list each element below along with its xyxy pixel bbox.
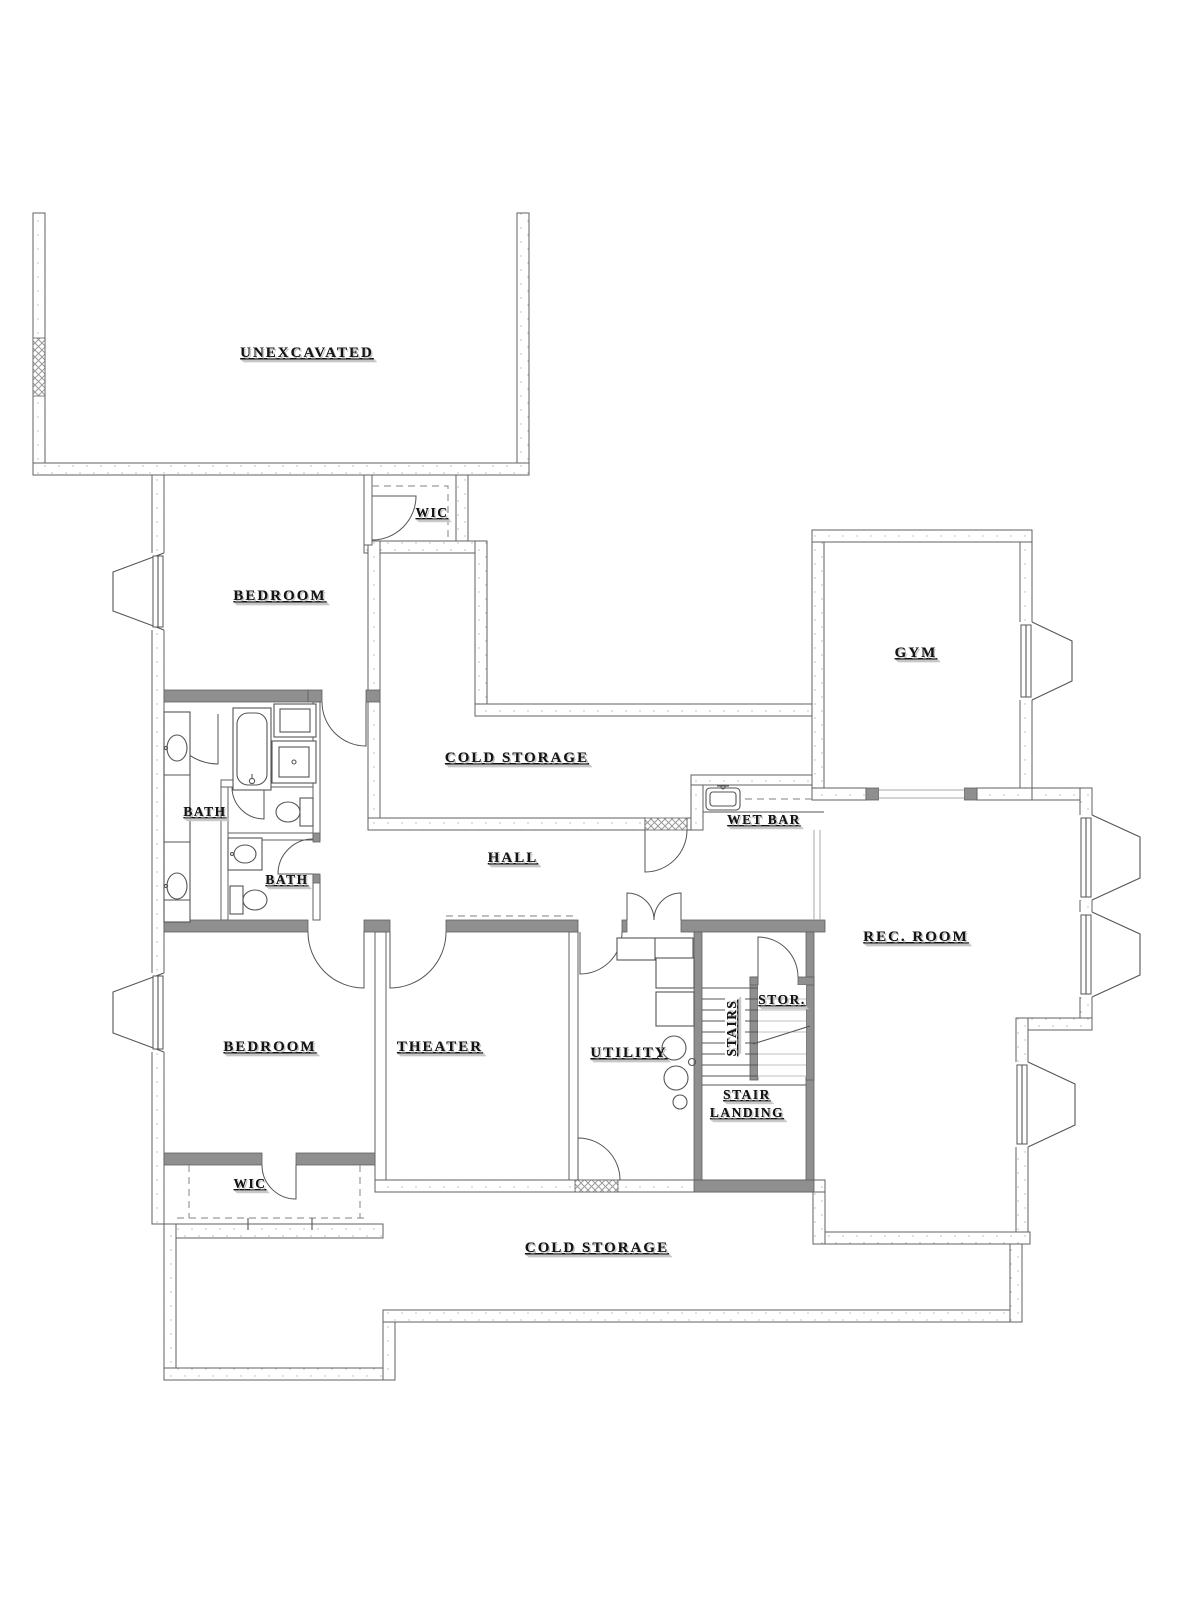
wet-bar-counter [703, 785, 824, 812]
expansion-tank [673, 1095, 687, 1109]
label-rec-room: REC. ROOM [863, 929, 969, 945]
door-hall-closet-left [627, 893, 654, 920]
water-softener [656, 992, 694, 1026]
sink-top [167, 735, 187, 761]
linen-cabinet [274, 704, 316, 737]
label-bedroom-top: BEDROOM [233, 588, 326, 604]
label-wic-bottom: WIC [233, 1176, 266, 1191]
label-hall: HALL [488, 850, 539, 866]
sink-bottom [167, 873, 187, 899]
bay-window-gym [1018, 622, 1072, 700]
utility-equipment [617, 938, 696, 1109]
toilet-lower [230, 886, 267, 914]
door-storage [758, 937, 798, 977]
label-wic-top: WIC [415, 505, 448, 520]
door-utility [580, 932, 622, 974]
bay-window-rec-upper [1078, 815, 1140, 900]
label-stair-landing-line1: STAIR [723, 1087, 771, 1102]
label-bath-main: BATH [183, 804, 226, 819]
gym-rec-opening [814, 786, 964, 920]
label-wet-bar: WET BAR [727, 812, 801, 827]
vanity-small-bath [228, 838, 262, 870]
door-wic-bottom [262, 1165, 296, 1199]
label-bath-small: BATH [265, 872, 308, 887]
furnace [656, 958, 694, 988]
label-theater: THEATER [397, 1039, 483, 1055]
bay-window-rec-lower [1014, 1062, 1075, 1147]
label-gym: GYM [895, 645, 938, 661]
door-bath-small [278, 839, 313, 874]
label-cold-storage-top: COLD STORAGE [445, 750, 589, 766]
bay-window-bedroom-bottom [113, 973, 166, 1052]
door-hall-closet-right [654, 893, 681, 920]
toilet-upper [276, 798, 313, 826]
wet-bar-sink [706, 788, 740, 810]
bay-window-rec-middle [1078, 912, 1140, 997]
label-stairs: STAIRS [724, 1000, 739, 1057]
floor-plan-page: UNEXCAVATED WIC BEDROOM GYM COLD STORAGE… [0, 0, 1200, 1600]
label-stair-landing-line2: LANDING [710, 1105, 784, 1120]
door-bedroom-bottom [308, 932, 364, 988]
shower [272, 741, 316, 783]
label-storage: STOR. [758, 992, 805, 1007]
door-cold-storage-top [645, 830, 687, 872]
bay-window-bedroom-top [113, 553, 166, 630]
bathtub [233, 708, 271, 790]
door-bedroom-top [322, 702, 366, 746]
door-cold-storage-bottom [578, 1138, 620, 1180]
label-unexcavated: UNEXCAVATED [240, 345, 374, 361]
door-toilet-room [232, 787, 264, 819]
door-theater [390, 932, 446, 988]
label-utility: UTILITY [590, 1045, 667, 1061]
basement-floor-plan: UNEXCAVATED WIC BEDROOM GYM COLD STORAGE… [0, 0, 1200, 1600]
label-bedroom-bottom: BEDROOM [223, 1039, 316, 1055]
water-heater-2 [664, 1066, 688, 1090]
label-cold-storage-bottom: COLD STORAGE [525, 1240, 669, 1256]
door-wic-top [372, 496, 416, 540]
